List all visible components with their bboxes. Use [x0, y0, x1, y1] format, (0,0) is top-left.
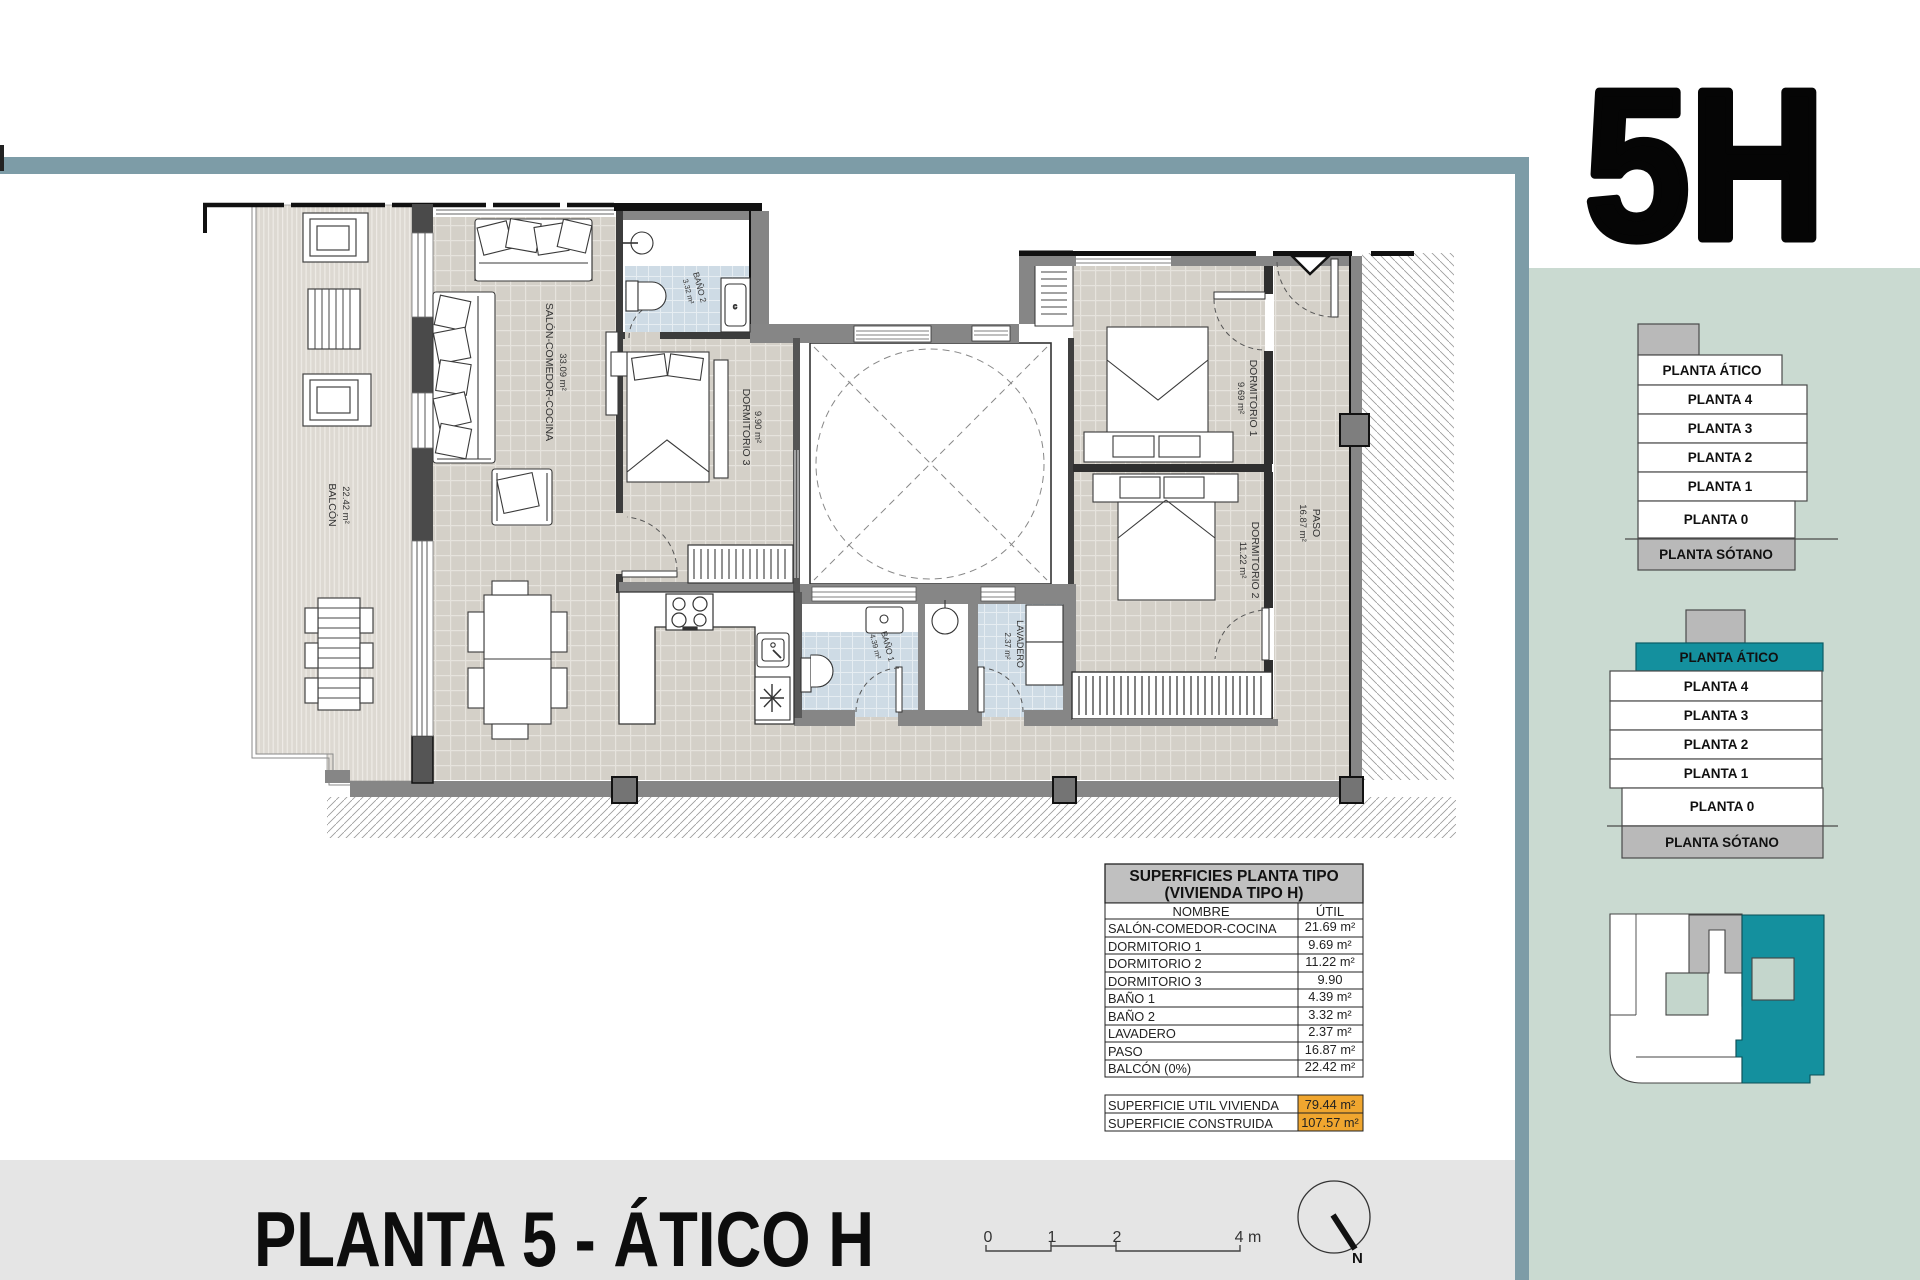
svg-text:21.69 m²: 21.69 m² — [1305, 919, 1356, 934]
svg-text:PLANTA SÓTANO: PLANTA SÓTANO — [1659, 547, 1773, 562]
svg-text:LAVADERO: LAVADERO — [1108, 1026, 1176, 1041]
svg-text:PASO: PASO — [1310, 509, 1322, 537]
svg-text:DORMITORIO 1: DORMITORIO 1 — [1247, 360, 1259, 437]
svg-text:SUPERFICIES PLANTA TIPO: SUPERFICIES PLANTA TIPO — [1129, 868, 1338, 885]
svg-text:2: 2 — [1113, 1229, 1122, 1246]
svg-text:PLANTA 1: PLANTA 1 — [1688, 479, 1753, 494]
svg-text:2.37 m²: 2.37 m² — [1308, 1024, 1352, 1039]
svg-text:4 m: 4 m — [1235, 1229, 1262, 1246]
svg-text:9.90: 9.90 — [1318, 972, 1343, 987]
svg-text:PLANTA 3: PLANTA 3 — [1688, 421, 1753, 436]
svg-text:(VIVIENDA TIPO H): (VIVIENDA TIPO H) — [1165, 885, 1304, 902]
svg-text:9.69 m²: 9.69 m² — [1235, 382, 1246, 414]
svg-text:9.90 m²: 9.90 m² — [752, 411, 763, 443]
svg-text:ÚTIL: ÚTIL — [1316, 904, 1344, 919]
svg-text:SALÓN-COMEDOR-COCINA: SALÓN-COMEDOR-COCINA — [1108, 921, 1277, 936]
svg-text:SUPERFICIE UTIL VIVIENDA: SUPERFICIE UTIL VIVIENDA — [1108, 1098, 1279, 1113]
svg-text:PLANTA 0: PLANTA 0 — [1684, 512, 1749, 527]
svg-text:11.22 m²: 11.22 m² — [1237, 542, 1248, 579]
svg-text:NOMBRE: NOMBRE — [1172, 904, 1229, 919]
svg-text:PLANTA 1: PLANTA 1 — [1684, 766, 1749, 781]
svg-text:LAVADERO: LAVADERO — [1015, 620, 1025, 668]
svg-text:DORMITORIO 2: DORMITORIO 2 — [1108, 956, 1202, 971]
svg-text:DORMITORIO 1: DORMITORIO 1 — [1108, 939, 1202, 954]
svg-text:c: c — [733, 302, 737, 311]
svg-text:22.42 m²: 22.42 m² — [340, 486, 351, 524]
svg-text:9.69 m²: 9.69 m² — [1308, 937, 1352, 952]
svg-text:SUPERFICIE CONSTRUIDA: SUPERFICIE CONSTRUIDA — [1108, 1116, 1273, 1131]
svg-text:3.32 m²: 3.32 m² — [1308, 1007, 1352, 1022]
svg-text:DORMITORIO 2: DORMITORIO 2 — [1249, 522, 1261, 599]
svg-text:16.87 m²: 16.87 m² — [1305, 1042, 1356, 1057]
svg-text:PLANTA 2: PLANTA 2 — [1684, 737, 1749, 752]
svg-text:79.44 m²: 79.44 m² — [1305, 1097, 1356, 1112]
svg-text:PLANTA 4: PLANTA 4 — [1684, 679, 1749, 694]
svg-text:4.39 m²: 4.39 m² — [1308, 989, 1352, 1004]
svg-text:BALCÓN: BALCÓN — [326, 483, 339, 526]
svg-text:PLANTA 3: PLANTA 3 — [1684, 708, 1749, 723]
svg-text:PLANTA 4: PLANTA 4 — [1688, 392, 1753, 407]
svg-text:107.57 m²: 107.57 m² — [1301, 1115, 1359, 1130]
svg-text:PLANTA 0: PLANTA 0 — [1690, 799, 1755, 814]
svg-text:N: N — [1352, 1250, 1363, 1267]
svg-text:16.87 m²: 16.87 m² — [1297, 504, 1308, 542]
svg-text:PLANTA ÁTICO: PLANTA ÁTICO — [1680, 650, 1779, 665]
svg-text:5H: 5H — [1585, 46, 1825, 283]
svg-text:PLANTA SÓTANO: PLANTA SÓTANO — [1665, 835, 1779, 850]
svg-text:PLANTA 5 - ÁTICO H: PLANTA 5 - ÁTICO H — [254, 1195, 874, 1280]
svg-text:11.22 m²: 11.22 m² — [1305, 954, 1355, 969]
svg-text:22.42 m²: 22.42 m² — [1305, 1059, 1356, 1074]
svg-text:1: 1 — [1048, 1229, 1057, 1246]
svg-text:0: 0 — [984, 1229, 993, 1246]
svg-text:PLANTA ÁTICO: PLANTA ÁTICO — [1663, 363, 1762, 378]
svg-text:33.09 m²: 33.09 m² — [557, 353, 568, 391]
svg-text:BALCÓN (0%): BALCÓN (0%) — [1108, 1061, 1191, 1076]
svg-text:BAÑO 1: BAÑO 1 — [1108, 991, 1155, 1006]
svg-text:PASO: PASO — [1108, 1044, 1143, 1059]
svg-text:2.37 m²: 2.37 m² — [1003, 632, 1012, 659]
svg-text:SALÓN-COMEDOR-COCINA: SALÓN-COMEDOR-COCINA — [543, 303, 556, 441]
svg-text:PLANTA 2: PLANTA 2 — [1688, 450, 1753, 465]
svg-text:BAÑO 2: BAÑO 2 — [1108, 1009, 1155, 1024]
svg-text:DORMITORIO 3: DORMITORIO 3 — [740, 389, 752, 466]
svg-text:DORMITORIO 3: DORMITORIO 3 — [1108, 974, 1202, 989]
